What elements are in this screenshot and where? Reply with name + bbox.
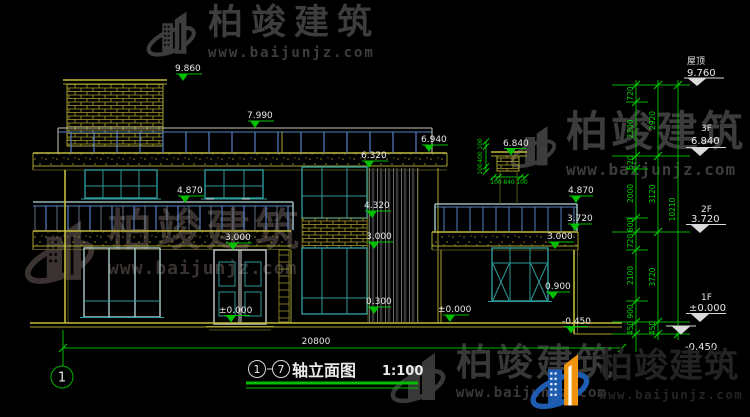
chain-seg: 2000 (626, 184, 635, 203)
chimney-dim-v-mid: 400 (477, 151, 484, 163)
level-dimension-panel: 720 2200 520 2000 600 720 2100 900 450 2… (612, 80, 690, 352)
watermark-logo-bottom-right: 柏竣建筑 www.baijunjz.com (530, 349, 743, 415)
window-1f-right (488, 248, 552, 302)
roof-railing (58, 128, 432, 153)
chain-seg: 2100 (626, 266, 635, 285)
chimney-dim-h-left: 100 (490, 179, 502, 186)
chimney-dim-h-right: 100 (516, 179, 528, 186)
dim-label-4320: 4.320 (364, 201, 390, 211)
dim-label-4870-left: 4.870 (177, 186, 203, 196)
chain-seg: 450 (648, 321, 657, 336)
window-1f-center (302, 248, 367, 314)
floor-label-1f: 1F (701, 293, 712, 303)
floor-label-roof: 屋顶 (687, 56, 705, 67)
floor-label-3f: 3F (701, 124, 712, 134)
chain-seg: 2200 (626, 119, 635, 138)
dim-label-3000-left: 3.000 (225, 233, 251, 243)
chain-seg: 520 (626, 155, 635, 170)
dim-label-6320: 6.320 (361, 151, 387, 161)
chimney-dim-v-bot: 100 (477, 163, 484, 175)
floor-value-roof: 9.760 (687, 68, 716, 79)
chain-seg: 720 (626, 234, 635, 249)
ground-line (30, 323, 648, 334)
dim-label-3000-center: 3.000 (366, 232, 392, 242)
chimney (491, 152, 527, 204)
chain-seg: 2920 (648, 111, 657, 130)
dim-label-zero-right: ±0.000 (438, 305, 472, 315)
window-2f-left (81, 170, 161, 199)
dim-label-7990: 7.990 (247, 111, 273, 121)
brick-spandrel (302, 218, 367, 248)
drawing-title: 1 7 轴立面图 1:100 (246, 361, 423, 389)
axis-bubble-number: 1 (58, 371, 66, 386)
axis-bubble-1: 1 (51, 330, 73, 388)
title-text: 轴立面图 (292, 361, 356, 380)
dim-label-6840-chimney: 6.840 (503, 139, 529, 149)
brand-logo-color-icon (530, 349, 594, 415)
chain-total: 10210 (668, 197, 677, 221)
dim-label-3000-right: 3.000 (547, 232, 573, 242)
chimney-dim-v-top: 100 (477, 138, 484, 150)
dim-label-9860: 9.860 (175, 64, 201, 74)
title-bubble-right: 7 (278, 363, 285, 376)
title-scale: 1:100 (382, 364, 423, 379)
dim-label-total-width: 20800 (302, 337, 331, 347)
floor-value-3f: 6.840 (691, 136, 720, 147)
floor-value-1f: ±0.000 (689, 303, 726, 314)
chimney-dim-h-mid: 840 (503, 179, 515, 186)
right-roof-railing (435, 204, 577, 231)
floor-value-2f: 3.720 (691, 214, 720, 225)
brand-url: www.baijunjz.com (599, 387, 743, 402)
window-2f-left2 (201, 170, 267, 199)
chain-seg: 900 (626, 304, 635, 319)
chain-seg: 3720 (648, 267, 657, 286)
chain-seg: 450 (626, 321, 635, 336)
dim-label-3720: 3.720 (567, 214, 593, 224)
dim-label-zero-left: ±0.000 (219, 306, 253, 316)
cad-elevation-screenshot: 柏竣建筑 www.baijunjz.com 柏竣建筑 www.baijunjz.… (0, 0, 750, 417)
dim-label-6940: 6.940 (421, 135, 447, 145)
dim-label-0300: 0.300 (366, 297, 392, 307)
dim-label-4870-right: 4.870 (568, 186, 594, 196)
title-bubble-left: 1 (254, 363, 261, 376)
entry-door (206, 250, 274, 330)
window-2f-center (302, 167, 367, 218)
chain-seg: 3120 (648, 184, 657, 203)
dim-label-neg450-left: -0.450 (562, 317, 591, 327)
chain-seg: 720 (626, 86, 635, 101)
dim-label-0900: 0.900 (545, 282, 571, 292)
window-1f-left (80, 248, 164, 318)
balcony-railing (33, 199, 293, 230)
balcony-slab (33, 231, 291, 250)
chain-seg: 600 (626, 218, 635, 233)
brand-name: 柏竣建筑 (599, 349, 743, 385)
